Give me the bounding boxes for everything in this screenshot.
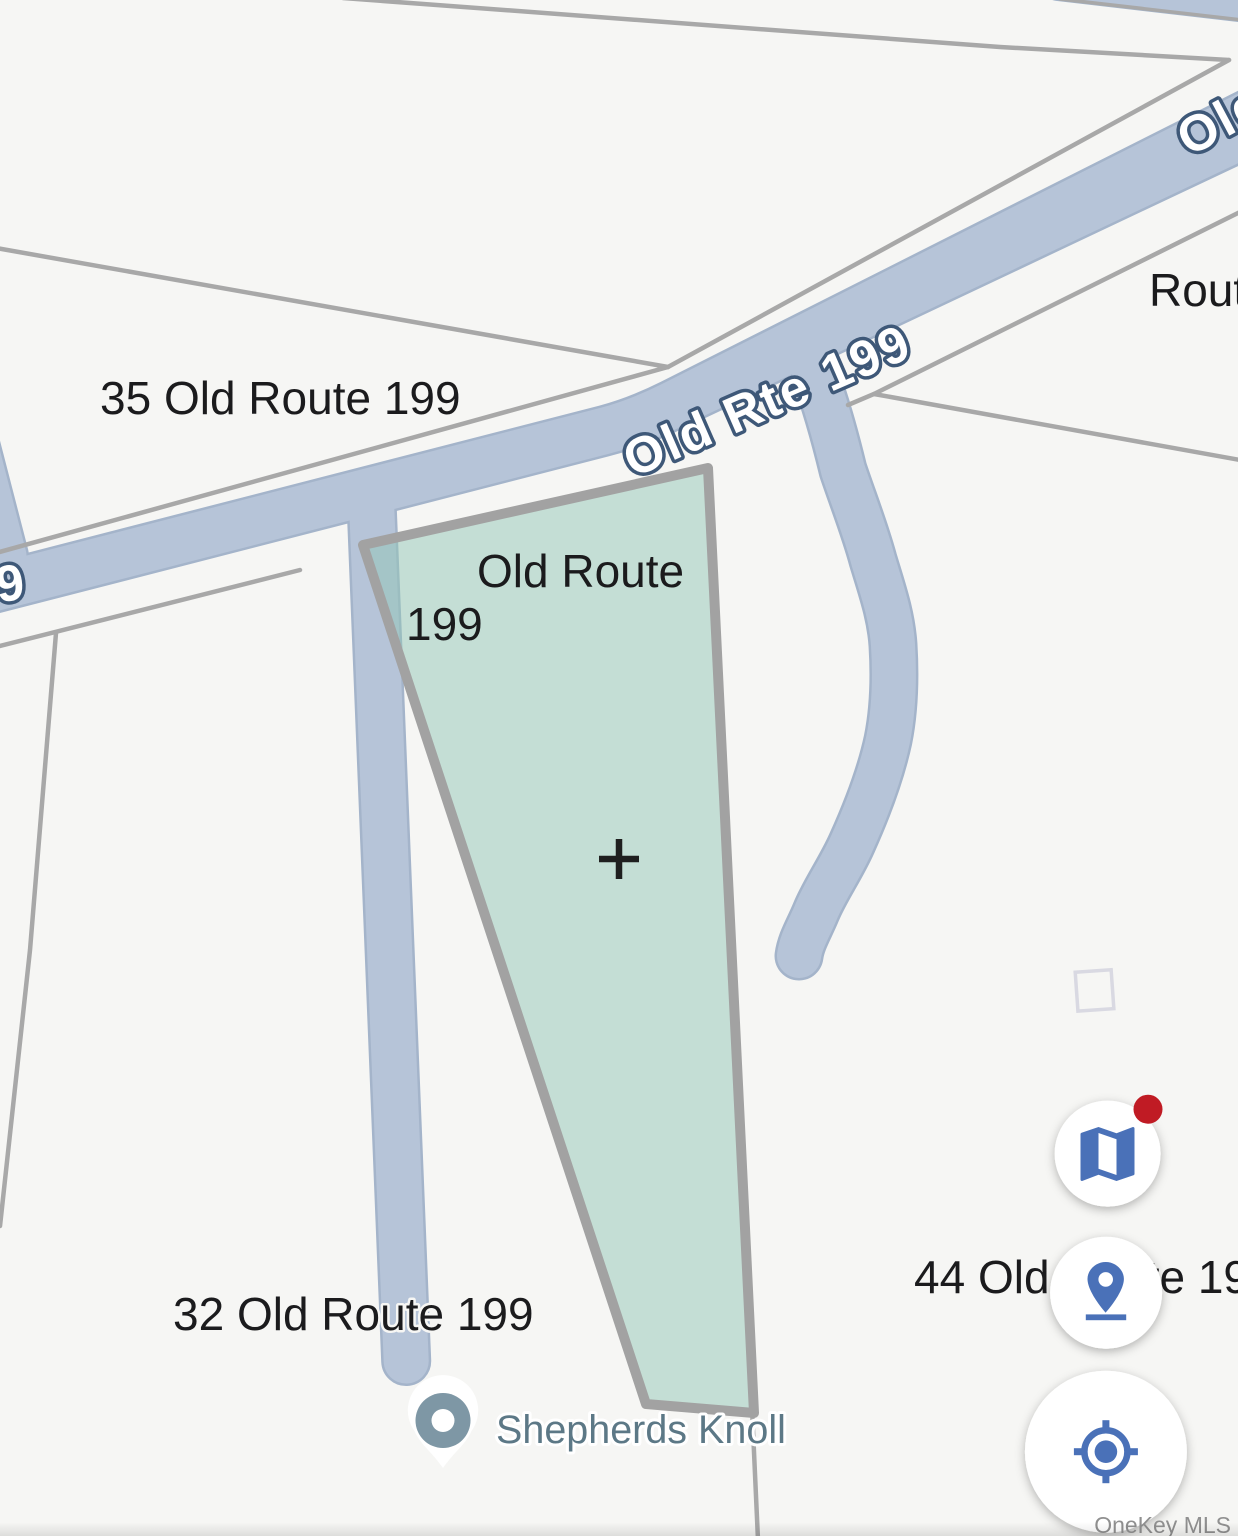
svg-text:Old Route: Old Route — [477, 545, 684, 597]
svg-text:Route 199: Route 199 — [1149, 264, 1238, 316]
svg-text:35 Old Route 199: 35 Old Route 199 — [100, 372, 461, 424]
svg-text:Shepherds Knoll: Shepherds Knoll — [496, 1408, 786, 1452]
svg-text:32 Old Route 199: 32 Old Route 199 — [173, 1288, 534, 1340]
svg-text:199: 199 — [406, 598, 483, 650]
